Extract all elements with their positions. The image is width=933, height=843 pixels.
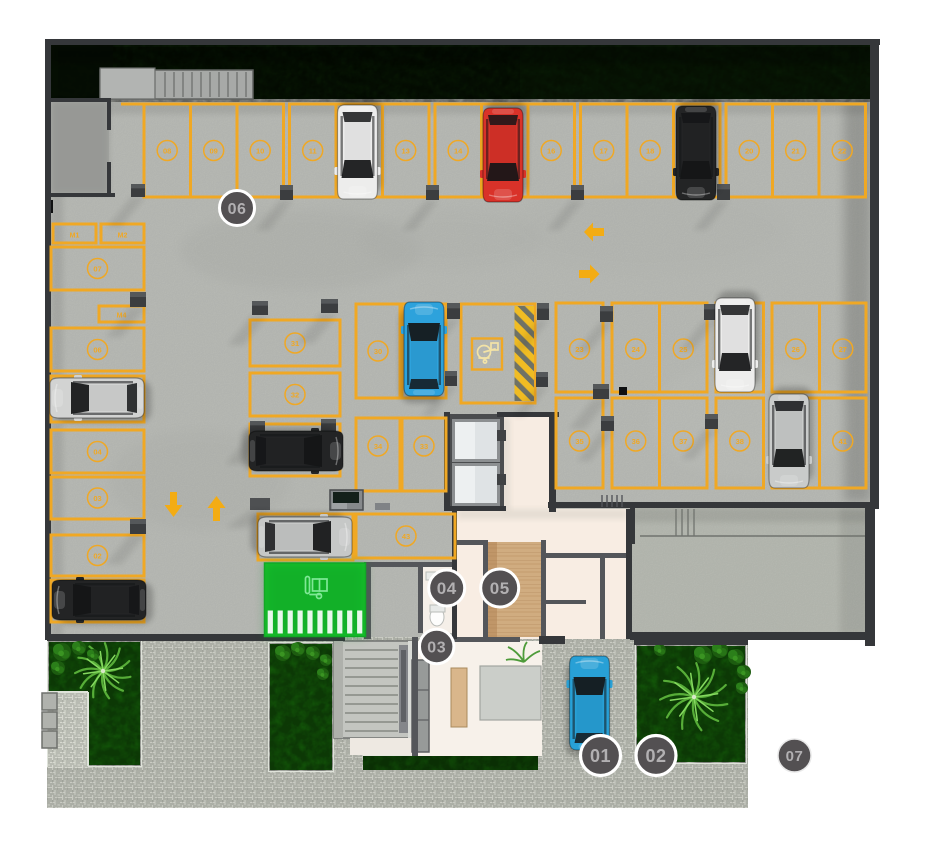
svg-text:35: 35 <box>575 437 583 446</box>
svg-text:32: 32 <box>291 391 299 400</box>
svg-text:M1: M1 <box>70 233 80 240</box>
svg-text:03: 03 <box>93 494 101 503</box>
svg-text:31: 31 <box>291 339 299 348</box>
svg-text:03: 03 <box>427 639 446 656</box>
svg-text:41: 41 <box>839 437 847 446</box>
svg-text:18: 18 <box>646 147 654 156</box>
svg-text:06: 06 <box>93 346 101 355</box>
svg-text:05: 05 <box>490 579 510 598</box>
svg-text:11: 11 <box>309 147 317 156</box>
svg-text:33: 33 <box>420 442 428 451</box>
svg-text:30: 30 <box>374 347 382 356</box>
svg-text:09: 09 <box>210 147 218 156</box>
svg-text:14: 14 <box>454 147 463 156</box>
svg-text:M2: M2 <box>118 233 128 240</box>
svg-text:02: 02 <box>645 746 666 766</box>
svg-text:02: 02 <box>93 552 101 561</box>
svg-text:43: 43 <box>402 532 410 541</box>
svg-text:37: 37 <box>679 437 687 446</box>
svg-text:22: 22 <box>838 147 846 156</box>
svg-text:13: 13 <box>402 147 410 156</box>
svg-text:26: 26 <box>792 345 800 354</box>
svg-text:07: 07 <box>786 748 804 765</box>
svg-text:10: 10 <box>256 147 264 156</box>
svg-text:07: 07 <box>93 265 101 274</box>
svg-text:21: 21 <box>792 147 800 156</box>
svg-text:06: 06 <box>228 201 247 218</box>
svg-text:38: 38 <box>736 437 744 446</box>
svg-text:04: 04 <box>437 579 457 598</box>
svg-text:36: 36 <box>632 437 640 446</box>
svg-text:34: 34 <box>374 442 383 451</box>
svg-text:08: 08 <box>163 147 171 156</box>
svg-text:27: 27 <box>839 345 847 354</box>
svg-text:20: 20 <box>745 147 753 156</box>
svg-text:24: 24 <box>632 345 641 354</box>
svg-text:04: 04 <box>93 448 102 457</box>
svg-text:01: 01 <box>590 746 611 766</box>
svg-text:16: 16 <box>547 147 555 156</box>
svg-text:17: 17 <box>600 147 608 156</box>
